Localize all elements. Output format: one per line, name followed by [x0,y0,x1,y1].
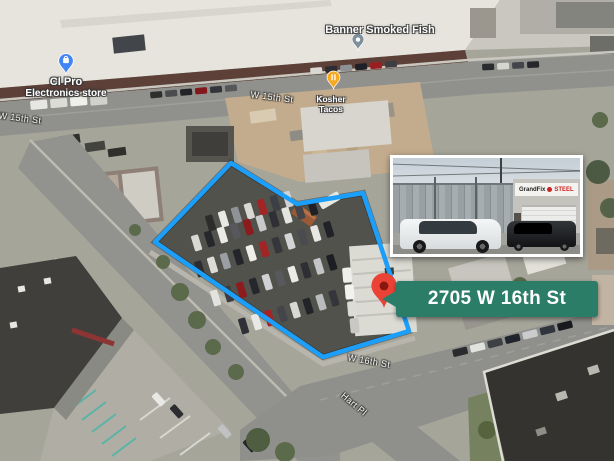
poi-label-banner-smoked-fish[interactable]: Banner Smoked Fish [325,24,434,36]
poi-label-kosher[interactable]: Kosher Tacos [316,94,345,114]
poi-kosher-line2: Tacos [316,104,345,114]
black-sedan-windows [514,223,552,233]
sign-text-black: GrandFix [519,187,545,193]
building-sign: GrandFix STEEL [515,183,578,196]
sign-text-red: STEEL [554,187,573,193]
white-sedan [400,219,501,249]
poi-label-ci-pro[interactable]: CI Pro Electronics store [25,76,106,99]
white-sedan-windows [419,221,478,233]
far-right-buildings [588,180,614,270]
black-sedan [507,221,576,247]
poi-kosher-line1: Kosher [316,94,345,104]
callout-tail [382,291,396,307]
wheel [514,242,523,251]
wheel [413,240,426,253]
streetview-photo: GrandFix STEEL [393,158,580,254]
satellite-map[interactable]: CI Pro Electronics store Banner Smoked F… [0,0,614,461]
poi-ci-pro-name: CI Pro [25,76,106,88]
address-callout[interactable]: 2705 W 16th St [396,281,598,317]
poi-ci-pro-category: Electronics store [25,88,106,99]
streetview-inset[interactable]: GrandFix STEEL [390,155,583,257]
sign-logo [547,187,552,192]
address-callout-text: 2705 W 16th St [428,288,566,309]
